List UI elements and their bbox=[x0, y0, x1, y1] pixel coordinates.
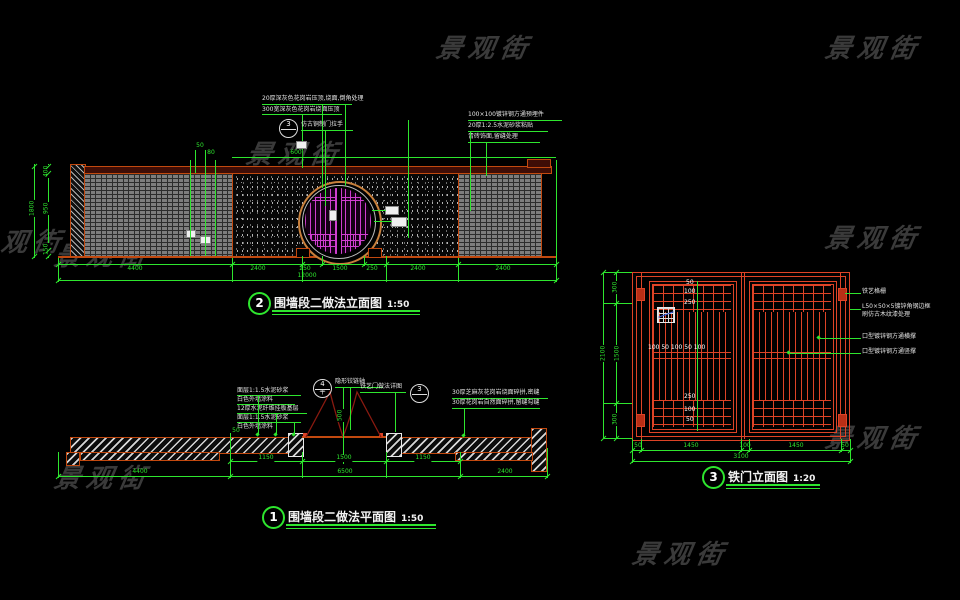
extension-line bbox=[386, 256, 387, 282]
extension-line bbox=[460, 452, 461, 478]
detail-bubble-3-plan: 3 bbox=[410, 384, 429, 403]
extension-line bbox=[556, 258, 557, 282]
dim-label: 1500 bbox=[335, 455, 352, 462]
extension-line bbox=[386, 452, 387, 478]
dim-total-label: 2100 bbox=[600, 345, 607, 362]
extension-line bbox=[850, 439, 851, 463]
extension-line bbox=[58, 258, 59, 282]
dim-label: 250 bbox=[684, 300, 695, 307]
extension-line bbox=[741, 439, 742, 452]
title-scale: 1:50 bbox=[401, 514, 423, 524]
extension-line bbox=[232, 258, 233, 282]
extension-line bbox=[302, 256, 303, 282]
gate-callout: L50×50×5镀锌角钢边框 bbox=[862, 304, 931, 311]
dim-label: 1150 bbox=[257, 455, 274, 462]
plan-callout-detail: 铁艺门做法详图 bbox=[360, 384, 402, 391]
gate-hinge bbox=[838, 288, 847, 301]
plan-callout: 30厚芝麻灰花岗岩烧面碎拼,密缝 bbox=[452, 390, 540, 397]
extension-line bbox=[749, 439, 750, 452]
drawing-title-gate: 铁门立面图1:20 bbox=[728, 468, 815, 485]
extension-line bbox=[302, 452, 303, 478]
title-bubble-plan: 1 bbox=[262, 506, 285, 529]
plan-callout: 30厚花岗岩自然面碎拼,留缝勾缝 bbox=[452, 400, 540, 407]
extension-line bbox=[58, 452, 59, 478]
extension-line bbox=[230, 433, 231, 478]
dim-label: 250 bbox=[684, 394, 695, 401]
dim-label: 6500 bbox=[336, 469, 353, 476]
dim-label: 1500 bbox=[614, 345, 621, 362]
dim-label: 100 bbox=[684, 407, 695, 414]
extension-line bbox=[841, 439, 842, 452]
extension-line bbox=[547, 448, 548, 478]
gate-slats-left bbox=[653, 312, 731, 400]
extension-line bbox=[364, 256, 365, 266]
extension-line bbox=[632, 439, 633, 463]
dim-total-label: 3100 bbox=[732, 454, 749, 461]
title-label: 围墙段二做法平面图 bbox=[288, 510, 396, 524]
plan-callout: 12厚水泥纤维挂板基层 bbox=[237, 406, 299, 413]
gate-callout: 铁艺格栅 bbox=[862, 289, 886, 296]
gate-lattice-top-right bbox=[753, 285, 831, 312]
extension-line bbox=[641, 439, 642, 452]
gate-hinge bbox=[636, 414, 645, 427]
dim-label: 50 bbox=[686, 280, 694, 287]
gate-lattice-bottom-right bbox=[753, 400, 831, 427]
plan-callout: 白色外墙涂料 bbox=[237, 424, 273, 431]
plan-callout: 面层1:1.5水泥砂浆 bbox=[237, 415, 288, 422]
dim-label: 1450 bbox=[682, 443, 699, 450]
dim-label: 50 bbox=[231, 428, 241, 435]
title-label: 铁门立面图 bbox=[728, 470, 788, 484]
dim-label: 1450 bbox=[787, 443, 804, 450]
dim-label: 4400 bbox=[131, 469, 148, 476]
dim-label: 100 bbox=[684, 289, 695, 296]
extension-line bbox=[458, 258, 459, 282]
gate-detail-grid-symbol bbox=[657, 307, 675, 323]
cad-drawing-canvas: 景观街 景观街 景观街 景观街 景观街 景观街 景观街 景观街 景观街 20厚深… bbox=[0, 0, 960, 600]
title-scale: 1:20 bbox=[793, 474, 815, 484]
gate-callout: 口型镀锌钢方通竖撑 bbox=[862, 349, 916, 356]
title-bubble-gate: 3 bbox=[702, 466, 725, 489]
gate-slats-right bbox=[753, 312, 831, 400]
plan-callout: 面层1:1.5水泥砂浆 bbox=[237, 388, 288, 395]
gate-callout: 口型镀锌钢方通横撑 bbox=[862, 334, 916, 341]
dim-label: 2400 bbox=[496, 469, 513, 476]
dim-label: 1150 bbox=[414, 455, 431, 462]
gate-hinge bbox=[838, 414, 847, 427]
dim-label: 500 bbox=[337, 409, 344, 422]
dim-label: 50 bbox=[686, 417, 694, 424]
extension-line bbox=[322, 256, 323, 266]
dim-label: 100 50 100 50 100 bbox=[648, 345, 705, 352]
drawing-title-plan: 围墙段二做法平面图1:50 bbox=[288, 508, 423, 525]
detail-bubble-4: 4平 bbox=[313, 379, 332, 398]
dim-label: 300 bbox=[612, 281, 619, 294]
gate-callout: 刷仿古木纹漆处理 bbox=[862, 312, 910, 319]
plan-callout: 白色外墙涂料 bbox=[237, 397, 273, 404]
gate-hinge bbox=[636, 288, 645, 301]
dim-label: 300 bbox=[612, 413, 619, 426]
